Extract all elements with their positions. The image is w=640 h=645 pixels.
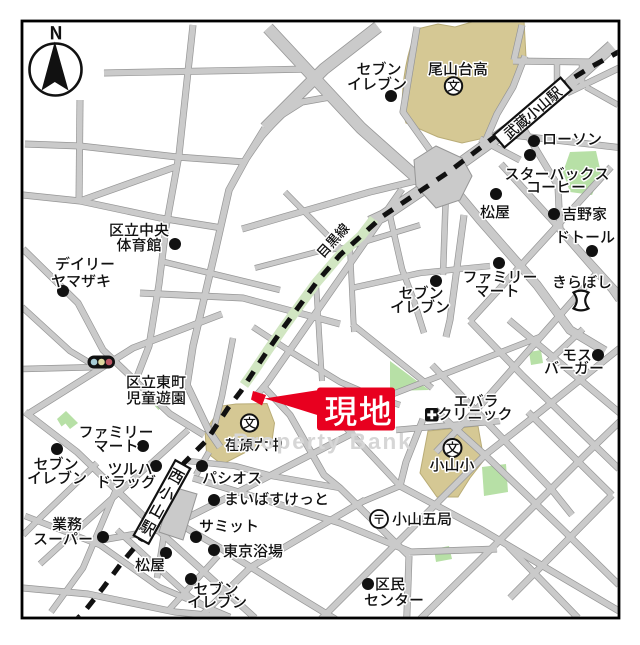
svg-text:Property Bank: Property Bank (233, 429, 413, 454)
